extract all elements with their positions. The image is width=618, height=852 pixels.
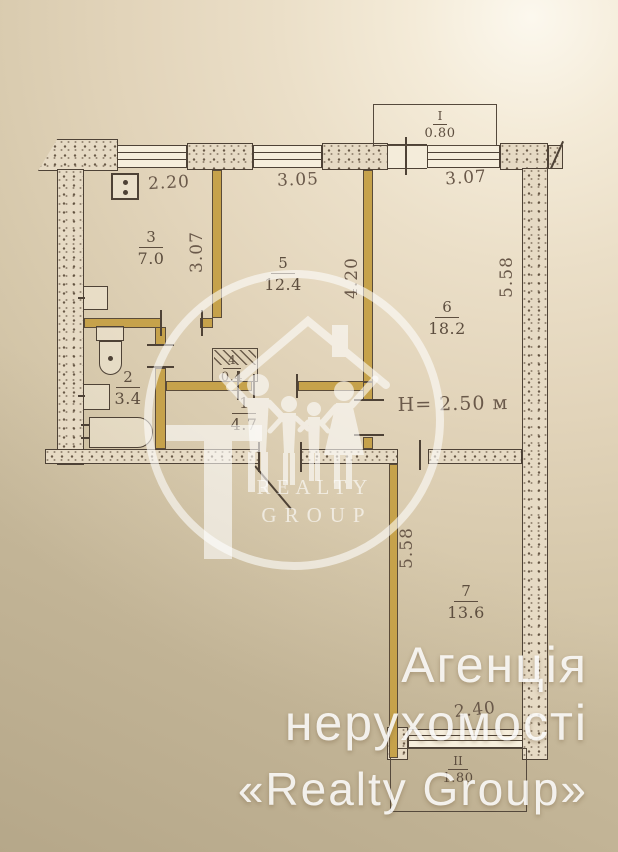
balcony-dim: 0.80	[408, 125, 472, 142]
wall-top-pier-3	[322, 143, 388, 170]
wall-top-left-corner	[38, 139, 118, 171]
dim-top-room6: 3.07	[429, 166, 502, 191]
logo-column	[166, 425, 262, 559]
floor-plan-photo: { "plan": { "rooms": [ {"num": "3", "are…	[0, 0, 618, 852]
logo-text-realty: REALTY	[250, 475, 380, 500]
bathtub-tap	[81, 424, 90, 426]
room-number: 7	[454, 583, 478, 602]
balcony-1-label: I 0.80	[408, 106, 472, 142]
kitchen-sink-icon	[83, 286, 108, 310]
wall-top-pier-right	[500, 143, 548, 170]
window-room5	[253, 145, 322, 168]
dim-top-room5: 3.05	[262, 169, 335, 192]
dim-top-kitchen: 2.20	[133, 171, 206, 195]
realty-group-logo-watermark	[130, 245, 470, 585]
logo-text-group: GROUP	[252, 503, 382, 528]
bath-sink-tap	[78, 395, 85, 397]
vent-dot	[123, 190, 128, 195]
wall-left	[57, 169, 84, 465]
wall-top-pier-2	[187, 143, 253, 170]
toilet-tank-icon	[96, 326, 124, 341]
vent-dot	[123, 180, 128, 185]
agency-watermark-line3: «Realty Group»	[238, 762, 588, 816]
bathtub-tap	[81, 437, 90, 439]
kitchen-sink-tap	[78, 297, 85, 299]
room-label-7: 7 13.6	[433, 582, 499, 622]
agency-watermark-line1: Агенція	[401, 636, 588, 694]
dim-room6-depth: 5.58	[497, 247, 517, 307]
balcony-door-gap	[388, 144, 427, 169]
window-kitchen	[117, 145, 187, 168]
toilet-drain-dot	[108, 356, 113, 361]
room-area: 13.6	[433, 602, 499, 622]
window-room6	[427, 145, 500, 168]
balcony-number: I	[433, 110, 448, 125]
agency-watermark-line2: нерухомості	[285, 694, 588, 752]
